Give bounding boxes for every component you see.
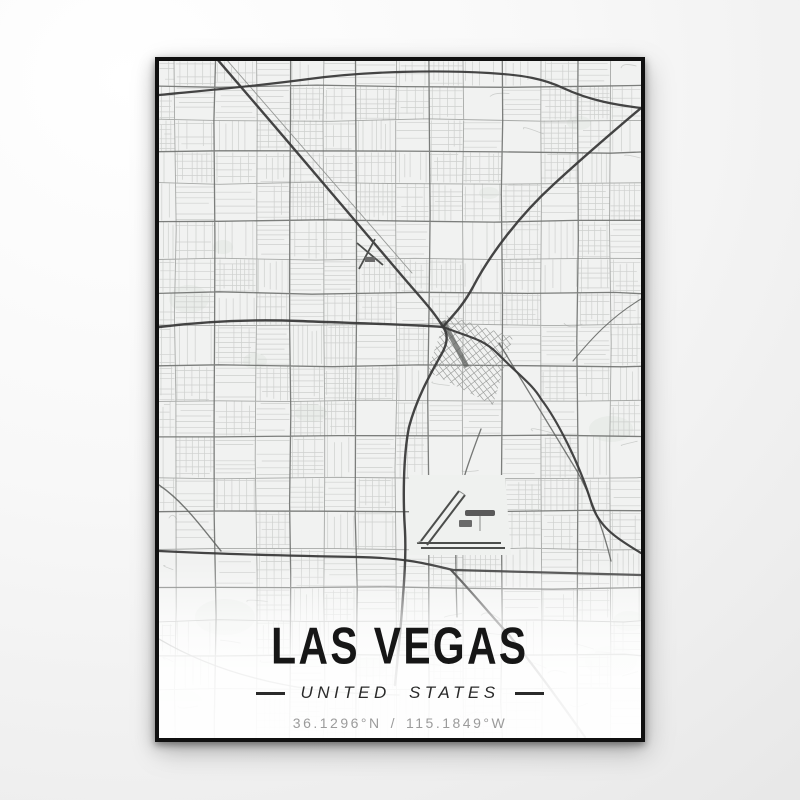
city-title: LAS VEGAS: [271, 619, 528, 671]
poster-frame: LAS VEGAS UNITED STATES 36.1296°N/115.18…: [155, 57, 645, 742]
latitude: 36.1296°N: [293, 715, 382, 731]
poster-caption: LAS VEGAS UNITED STATES 36.1296°N/115.18…: [159, 620, 641, 731]
left-dash: [256, 692, 285, 695]
country-label: UNITED STATES: [300, 683, 499, 703]
country-subtitle: UNITED STATES: [159, 683, 641, 703]
page-background: { "poster": { "title": "LAS VEGAS", "sub…: [0, 0, 800, 800]
coordinates-separator: /: [391, 715, 397, 731]
right-dash: [515, 692, 544, 695]
longitude: 115.1849°W: [406, 715, 507, 731]
coordinates: 36.1296°N/115.1849°W: [159, 715, 641, 731]
